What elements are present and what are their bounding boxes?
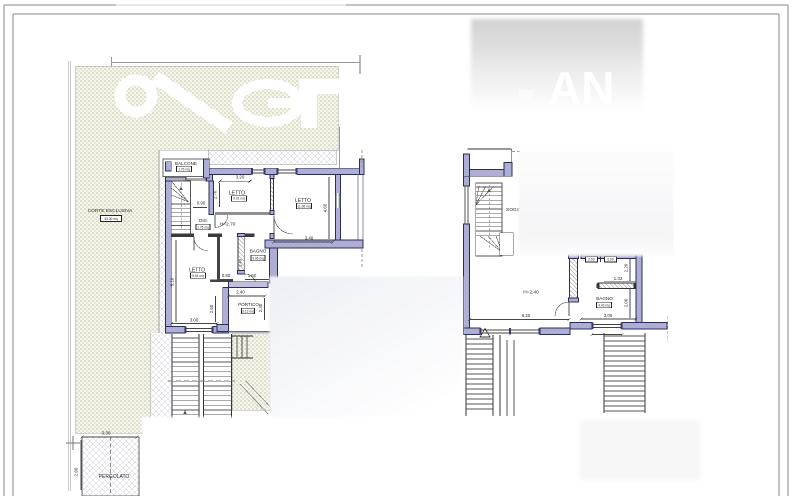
svg-text:BAGNO: BAGNO xyxy=(596,296,613,301)
svg-text:3.06 mq: 3.06 mq xyxy=(252,256,264,260)
svg-text:3.40: 3.40 xyxy=(305,235,314,240)
svg-text:3.00: 3.00 xyxy=(604,313,613,318)
svg-text:1.60: 1.60 xyxy=(248,273,257,278)
svg-text:0.90: 0.90 xyxy=(588,258,594,262)
svg-text:PORTICO: PORTICO xyxy=(238,302,259,307)
svg-text:4.43 mq: 4.43 mq xyxy=(598,303,610,307)
svg-text:2.60: 2.60 xyxy=(209,304,214,313)
svg-text:2.00: 2.00 xyxy=(624,298,629,307)
svg-text:2.40: 2.40 xyxy=(236,290,245,295)
svg-text:11.08 mq: 11.08 mq xyxy=(297,204,310,208)
svg-text:3.20: 3.20 xyxy=(236,175,245,180)
svg-text:H=2.40: H=2.40 xyxy=(523,290,539,296)
svg-text:0.80: 0.80 xyxy=(222,273,231,278)
svg-text:CORTE ESCLUSIVA: CORTE ESCLUSIVA xyxy=(88,208,133,214)
svg-text:H=2.70: H=2.70 xyxy=(220,222,236,228)
svg-text:9.54 mq: 9.54 mq xyxy=(192,274,204,278)
svg-text:2.60: 2.60 xyxy=(74,467,79,476)
svg-text:2.70: 2.70 xyxy=(213,190,218,199)
svg-text:3.13 mq: 3.13 mq xyxy=(242,309,254,313)
svg-text:9.01 mq: 9.01 mq xyxy=(233,197,245,201)
svg-text:1.76 mq: 1.76 mq xyxy=(197,225,209,229)
svg-text:DIS.: DIS. xyxy=(199,218,208,223)
svg-text:3.00: 3.00 xyxy=(190,318,199,323)
svg-text:2.20: 2.20 xyxy=(624,263,629,272)
svg-text:AN: AN xyxy=(548,62,614,114)
svg-text:5.20: 5.20 xyxy=(522,313,531,318)
svg-text:2.30: 2.30 xyxy=(258,303,263,312)
svg-text:PERGOLATO: PERGOLATO xyxy=(99,474,130,480)
svg-text:BALCONE: BALCONE xyxy=(175,161,197,166)
svg-text:3.30: 3.30 xyxy=(102,431,111,436)
svg-text:45.00 mq: 45.00 mq xyxy=(104,217,118,221)
svg-text:1.40: 1.40 xyxy=(238,258,243,267)
svg-text:BAGNO: BAGNO xyxy=(250,249,267,254)
svg-text:0.90: 0.90 xyxy=(607,258,613,262)
svg-text:5.10: 5.10 xyxy=(169,277,174,286)
svg-text:4.60: 4.60 xyxy=(322,203,327,212)
svg-text:0.90: 0.90 xyxy=(197,201,206,206)
svg-text:1.76 mq: 1.76 mq xyxy=(178,167,190,171)
svg-text:1.32: 1.32 xyxy=(614,276,623,281)
